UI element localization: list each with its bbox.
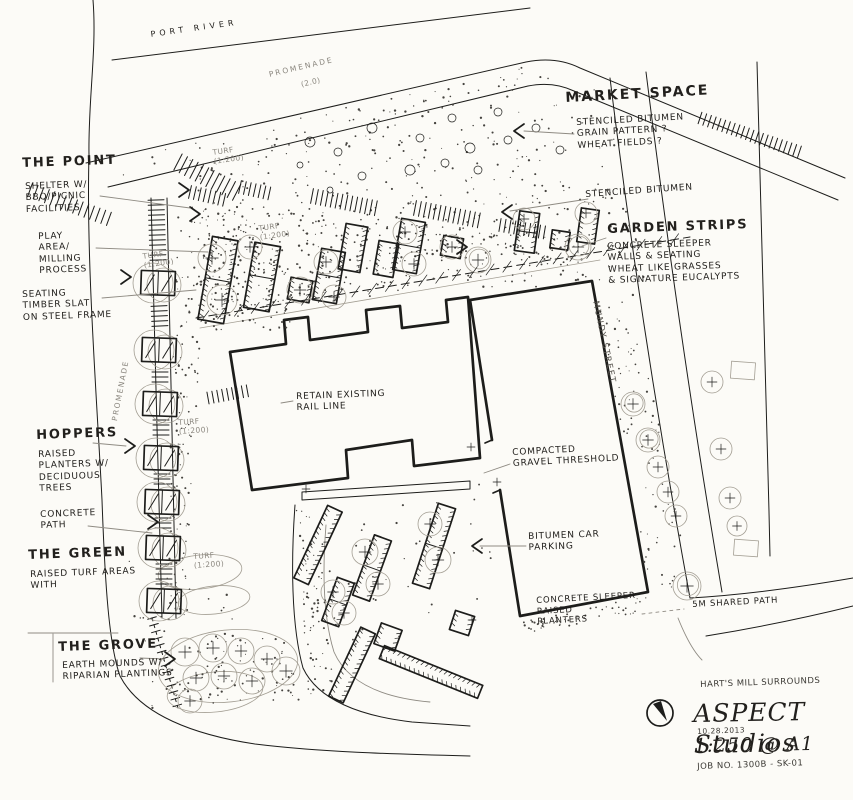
sketch-mark <box>241 386 243 398</box>
sketch-mark <box>614 328 616 330</box>
sketch-mark <box>645 597 646 598</box>
sketch-mark <box>271 145 272 146</box>
sketch-mark <box>276 311 278 313</box>
sketch-mark <box>426 252 428 254</box>
sketch-mark <box>231 299 233 301</box>
sketch-mark <box>293 213 295 215</box>
sketch-mark <box>273 268 274 269</box>
sketch-mark <box>327 642 329 644</box>
sketch-mark <box>212 391 214 403</box>
sketch-mark <box>283 642 285 644</box>
sketch-mark <box>500 77 501 78</box>
sketch-mark <box>497 164 499 166</box>
sketch-mark <box>538 225 540 238</box>
sketch-mark <box>190 162 198 178</box>
sketch-mark <box>200 284 202 286</box>
sketch-mark <box>100 196 190 208</box>
sketch-mark <box>302 540 304 542</box>
sketch-mark <box>190 160 191 161</box>
sketch-mark <box>424 216 425 217</box>
sketch-mark <box>360 219 362 221</box>
sketch-mark <box>220 254 222 256</box>
sketch-mark <box>312 616 314 618</box>
sketch-mark <box>234 211 236 213</box>
sketch-mark <box>278 301 279 302</box>
sketch-mark <box>330 259 331 260</box>
sketch-mark <box>306 232 308 234</box>
sketch-mark <box>360 244 362 246</box>
sketch-mark <box>282 678 284 680</box>
sketch-mark <box>233 228 235 230</box>
sketch-mark <box>176 602 178 604</box>
sketch-mark <box>431 253 433 255</box>
sketch-mark <box>472 236 474 238</box>
sketch-mark <box>331 260 332 261</box>
sketch-mark <box>207 225 208 226</box>
sketch-mark <box>419 166 420 167</box>
sleeper-planters-note: CONCRETE SLEEPER RAISED PLANTERS <box>536 591 637 628</box>
sketch-mark <box>472 243 473 244</box>
sketch-mark <box>517 78 518 79</box>
sketch-mark <box>428 239 430 241</box>
sketch-mark <box>505 243 506 244</box>
sketch-mark <box>284 310 286 312</box>
sketch-mark <box>615 396 616 397</box>
sketch-mark <box>209 267 210 268</box>
sketch-mark <box>509 220 511 233</box>
sketch-mark <box>655 505 657 507</box>
sketch-mark <box>353 535 392 601</box>
sketch-mark <box>370 260 371 261</box>
sketch-mark <box>441 159 449 167</box>
sketch-mark <box>450 96 452 98</box>
sketch-mark <box>359 110 360 111</box>
sketch-mark <box>306 176 307 177</box>
sketch-mark <box>493 236 494 237</box>
sketch-mark <box>187 690 189 692</box>
sketch-mark <box>400 212 402 214</box>
sketch-mark <box>203 211 204 212</box>
sketch-mark <box>635 238 637 240</box>
sketch-mark <box>415 233 417 235</box>
sketch-mark <box>788 143 792 154</box>
sketch-mark <box>185 578 186 579</box>
sketch-mark <box>374 152 376 154</box>
sketch-mark <box>632 294 634 296</box>
sketch-mark <box>217 638 218 639</box>
sketch-mark <box>620 373 621 374</box>
sketch-mark <box>648 462 650 464</box>
sketch-mark <box>307 681 308 682</box>
sketch-mark <box>401 141 403 143</box>
sketch-mark <box>325 276 327 278</box>
sketch-mark <box>323 627 325 629</box>
sketch-mark <box>562 185 564 187</box>
sketch-mark <box>181 343 183 345</box>
sketch-mark <box>227 182 235 198</box>
sketch-mark <box>223 219 225 221</box>
sketch-mark <box>266 213 267 214</box>
sketch-mark <box>315 234 316 235</box>
sketch-mark <box>355 545 357 547</box>
sketch-mark <box>606 323 608 325</box>
sketch-mark <box>408 135 410 137</box>
sketch-mark <box>571 117 573 119</box>
sketch-mark <box>175 372 177 374</box>
sketch-mark <box>421 115 423 117</box>
sketch-mark <box>480 276 481 277</box>
sketch-mark <box>367 291 368 292</box>
sketch-mark <box>436 502 437 503</box>
sketch-mark <box>597 183 599 185</box>
sketch-mark <box>230 173 232 175</box>
sketch-mark <box>410 203 411 204</box>
sketch-mark <box>635 363 637 365</box>
sketch-mark <box>326 114 327 115</box>
sketch-mark <box>310 630 311 631</box>
sketch-mark <box>472 125 473 126</box>
courtyard-path <box>302 481 470 500</box>
sketch-mark <box>370 200 373 215</box>
sketch-mark <box>258 161 260 163</box>
sketch-mark <box>224 301 225 302</box>
sketch-mark <box>205 208 207 210</box>
sketch-mark <box>529 265 531 267</box>
sketch-mark <box>286 153 287 154</box>
sketch-mark <box>143 391 178 416</box>
sketch-mark <box>188 524 190 526</box>
sketch-mark <box>217 309 218 310</box>
sketch-mark <box>556 213 558 215</box>
sketch-mark <box>440 195 442 197</box>
sketch-mark <box>563 190 564 191</box>
sketch-mark <box>142 337 177 362</box>
sketch-mark <box>517 166 518 167</box>
sketch-mark <box>196 341 198 343</box>
sketch-mark <box>630 417 632 419</box>
sketch-mark <box>358 266 360 268</box>
sketch-mark <box>355 135 357 137</box>
sketch-mark <box>312 659 314 661</box>
sketch-mark <box>435 91 436 92</box>
sketch-mark <box>207 215 209 217</box>
sketch-mark <box>348 583 350 585</box>
sketch-mark <box>434 170 436 172</box>
sketch-mark <box>151 593 161 609</box>
sketch-mark <box>413 203 414 204</box>
sketch-mark <box>174 608 176 610</box>
sketch-mark <box>151 707 153 709</box>
sketch-mark <box>448 207 451 222</box>
sketch-mark <box>207 392 209 404</box>
sketch-mark <box>674 545 676 547</box>
sketch-mark <box>278 326 279 327</box>
sketch-mark <box>198 305 199 306</box>
sketch-mark <box>487 137 489 139</box>
sketch-mark <box>330 680 332 682</box>
sketch-mark <box>536 149 538 151</box>
sketch-mark <box>203 255 205 257</box>
sketch-mark <box>306 242 308 244</box>
sketch-mark <box>398 218 399 219</box>
sketch-mark <box>245 232 246 233</box>
sketch-mark <box>166 688 168 690</box>
sketch-mark <box>218 679 219 680</box>
sketch-mark <box>334 148 342 156</box>
sketch-mark <box>123 174 124 175</box>
sketch-mark <box>397 290 399 292</box>
sketch-mark <box>218 666 220 668</box>
sketch-mark <box>179 592 180 593</box>
sketch-mark <box>269 329 271 331</box>
sketch-mark <box>270 259 272 261</box>
sketch-mark <box>452 167 454 169</box>
sketch-mark <box>608 212 610 214</box>
sketch-mark <box>442 96 444 98</box>
sketch-mark <box>459 229 461 231</box>
sketch-mark <box>764 135 768 146</box>
sketch-mark <box>503 79 505 81</box>
sketch-mark <box>496 143 498 145</box>
sketch-mark <box>427 111 429 113</box>
sketch-mark <box>193 267 195 269</box>
sketch-mark <box>208 598 210 600</box>
sketch-mark <box>415 543 417 545</box>
sketch-mark <box>569 236 589 256</box>
sketch-mark <box>182 277 183 278</box>
sketch-mark <box>231 243 232 244</box>
grove-mound-2 <box>165 667 265 717</box>
sketch-mark <box>387 126 389 128</box>
sketch-mark <box>309 139 311 141</box>
sketch-mark <box>520 67 522 69</box>
sketch-mark <box>273 130 274 131</box>
sketch-mark <box>404 260 405 261</box>
sketch-mark <box>179 523 181 525</box>
sketch-mark <box>177 335 179 337</box>
sketch-mark <box>240 699 241 700</box>
sketch-mark <box>320 191 323 206</box>
sketch-mark <box>356 255 358 257</box>
sketch-mark <box>502 203 504 205</box>
sketch-mark <box>668 504 669 505</box>
sketch-mark <box>214 202 215 203</box>
sketch-mark <box>663 510 665 512</box>
sketch-mark <box>647 548 649 550</box>
sketch-mark <box>176 485 178 487</box>
sketch-mark <box>532 124 540 132</box>
sketch-mark <box>560 264 562 266</box>
sketch-mark <box>237 645 238 646</box>
sketch-mark <box>421 187 423 189</box>
sketch-mark <box>276 685 277 686</box>
sketch-mark <box>325 225 326 226</box>
sketch-mark <box>506 197 507 198</box>
sketch-mark <box>512 274 514 276</box>
sketch-mark <box>318 621 320 623</box>
sketch-mark <box>395 216 397 218</box>
sketch-mark <box>661 574 663 576</box>
sketch-mark <box>356 234 358 236</box>
sketch-mark <box>238 226 240 228</box>
sketch-mark <box>149 240 165 241</box>
sketch-mark <box>303 603 305 605</box>
sketch-mark <box>398 636 399 637</box>
sketch-mark <box>531 275 532 276</box>
sketch-mark <box>303 293 305 295</box>
mundy-street-east-kerb <box>646 72 722 592</box>
threshold-opening-ticks <box>485 440 500 493</box>
sketch-mark <box>177 529 178 530</box>
sketch-mark <box>292 182 294 184</box>
sketch-mark <box>175 695 176 696</box>
sketch-mark <box>490 107 492 109</box>
sketch-mark <box>458 209 461 224</box>
sketch-mark <box>511 280 513 282</box>
sketch-mark <box>438 205 441 220</box>
sketch-mark <box>222 389 224 401</box>
sketch-mark <box>217 390 219 402</box>
sketch-mark <box>215 292 217 294</box>
sketch-mark <box>548 128 550 130</box>
sketch-mark <box>513 252 515 254</box>
sketch-mark <box>275 638 277 640</box>
sketch-mark <box>163 536 164 560</box>
sketch-mark <box>553 142 554 143</box>
sketch-mark <box>318 246 319 247</box>
sketch-mark <box>322 543 324 545</box>
sketch-mark <box>662 484 663 485</box>
sketch-mark <box>491 233 492 234</box>
sketch-mark <box>798 146 802 157</box>
sketch-mark <box>245 654 246 655</box>
sketch-mark <box>565 150 566 151</box>
sketch-mark <box>672 580 674 582</box>
hoppers-note: RAISED PLANTERS W/ DECIDUOUS TREES <box>38 448 110 495</box>
sketch-mark <box>208 697 210 699</box>
sketch-mark <box>187 682 189 684</box>
sketch-mark <box>306 516 307 517</box>
sketch-mark <box>306 592 308 594</box>
sketch-mark <box>248 183 251 196</box>
sketch-mark <box>515 203 516 204</box>
sketch-mark <box>207 665 209 667</box>
sketch-mark <box>310 627 311 628</box>
sketch-mark <box>281 689 283 691</box>
sketch-mark <box>320 232 322 234</box>
sketch-mark <box>402 504 404 506</box>
the-grove-title: THE GROVE <box>58 637 158 657</box>
sketch-mark <box>209 235 210 236</box>
sketch-mark <box>212 305 214 307</box>
sketch-mark <box>645 487 646 488</box>
sketch-mark <box>416 225 417 226</box>
sketch-mark <box>379 253 380 254</box>
sketch-mark <box>618 368 620 370</box>
sketch-mark <box>534 173 536 175</box>
sketch-mark <box>373 118 375 120</box>
sketch-mark <box>631 423 633 425</box>
titleblock-scale: 1:250 @ A1 <box>694 733 814 759</box>
sketch-mark <box>588 234 590 236</box>
sketch-mark <box>483 124 485 126</box>
sketch-mark <box>330 246 332 248</box>
sketch-mark <box>225 678 226 679</box>
sketch-mark <box>403 207 405 209</box>
sketch-mark <box>394 109 396 111</box>
sketch-mark <box>389 111 390 112</box>
sketch-mark <box>530 628 532 630</box>
sketch-mark <box>298 225 300 227</box>
sketch-mark <box>407 284 409 286</box>
sketch-mark <box>532 202 533 203</box>
sketch-mark <box>441 107 443 109</box>
sketch-mark <box>494 141 495 142</box>
sketch-mark <box>658 432 659 433</box>
sketch-mark <box>472 212 475 227</box>
sketch-mark <box>314 666 315 667</box>
sketch-mark <box>504 219 506 232</box>
sketch-mark <box>482 286 484 288</box>
sketch-mark <box>514 124 524 138</box>
sketch-mark <box>308 161 310 163</box>
stenciled-bitumen-note: STENCILED BITUMEN GRAIN PATTERN ? WHEAT … <box>576 112 685 151</box>
sketch-mark <box>209 693 211 695</box>
sketch-mark <box>148 205 164 206</box>
sketch-mark <box>270 263 272 265</box>
sketch-mark <box>335 227 336 228</box>
sketch-mark <box>497 244 499 246</box>
sketch-mark <box>314 678 316 680</box>
sketch-mark <box>517 246 519 248</box>
sketch-mark <box>316 190 319 205</box>
sketch-mark <box>313 625 314 626</box>
sketch-mark <box>426 226 427 227</box>
sketch-mark <box>385 181 387 183</box>
sketch-mark <box>149 494 159 510</box>
sketch-mark <box>389 157 391 159</box>
sketch-mark <box>217 213 219 215</box>
sketch-mark <box>228 209 230 211</box>
sketch-mark <box>187 453 189 455</box>
sketch-mark <box>482 263 483 264</box>
sketch-mark <box>303 547 305 549</box>
sketch-mark <box>554 105 555 106</box>
sketch-mark <box>423 203 426 218</box>
sketch-mark <box>329 570 331 572</box>
sketch-mark <box>441 259 443 261</box>
sketch-mark <box>361 529 363 531</box>
sketch-mark <box>640 531 641 532</box>
sketch-mark <box>208 190 211 203</box>
sketch-mark <box>535 252 537 254</box>
sketch-mark <box>142 617 144 619</box>
sketch-mark <box>669 583 671 585</box>
sketch-mark <box>385 579 386 580</box>
sketch-mark <box>185 374 187 376</box>
sketch-mark <box>567 208 569 210</box>
sketch-mark <box>258 268 260 270</box>
sketch-mark <box>473 499 475 501</box>
sketch-mark <box>539 160 540 161</box>
sketch-mark <box>324 601 326 603</box>
sketch-mark <box>304 131 306 133</box>
sketch-mark <box>321 226 322 227</box>
sketch-mark <box>443 206 446 221</box>
sketch-mark <box>263 206 265 208</box>
sketch-mark <box>434 122 436 124</box>
sketch-mark <box>533 224 535 237</box>
